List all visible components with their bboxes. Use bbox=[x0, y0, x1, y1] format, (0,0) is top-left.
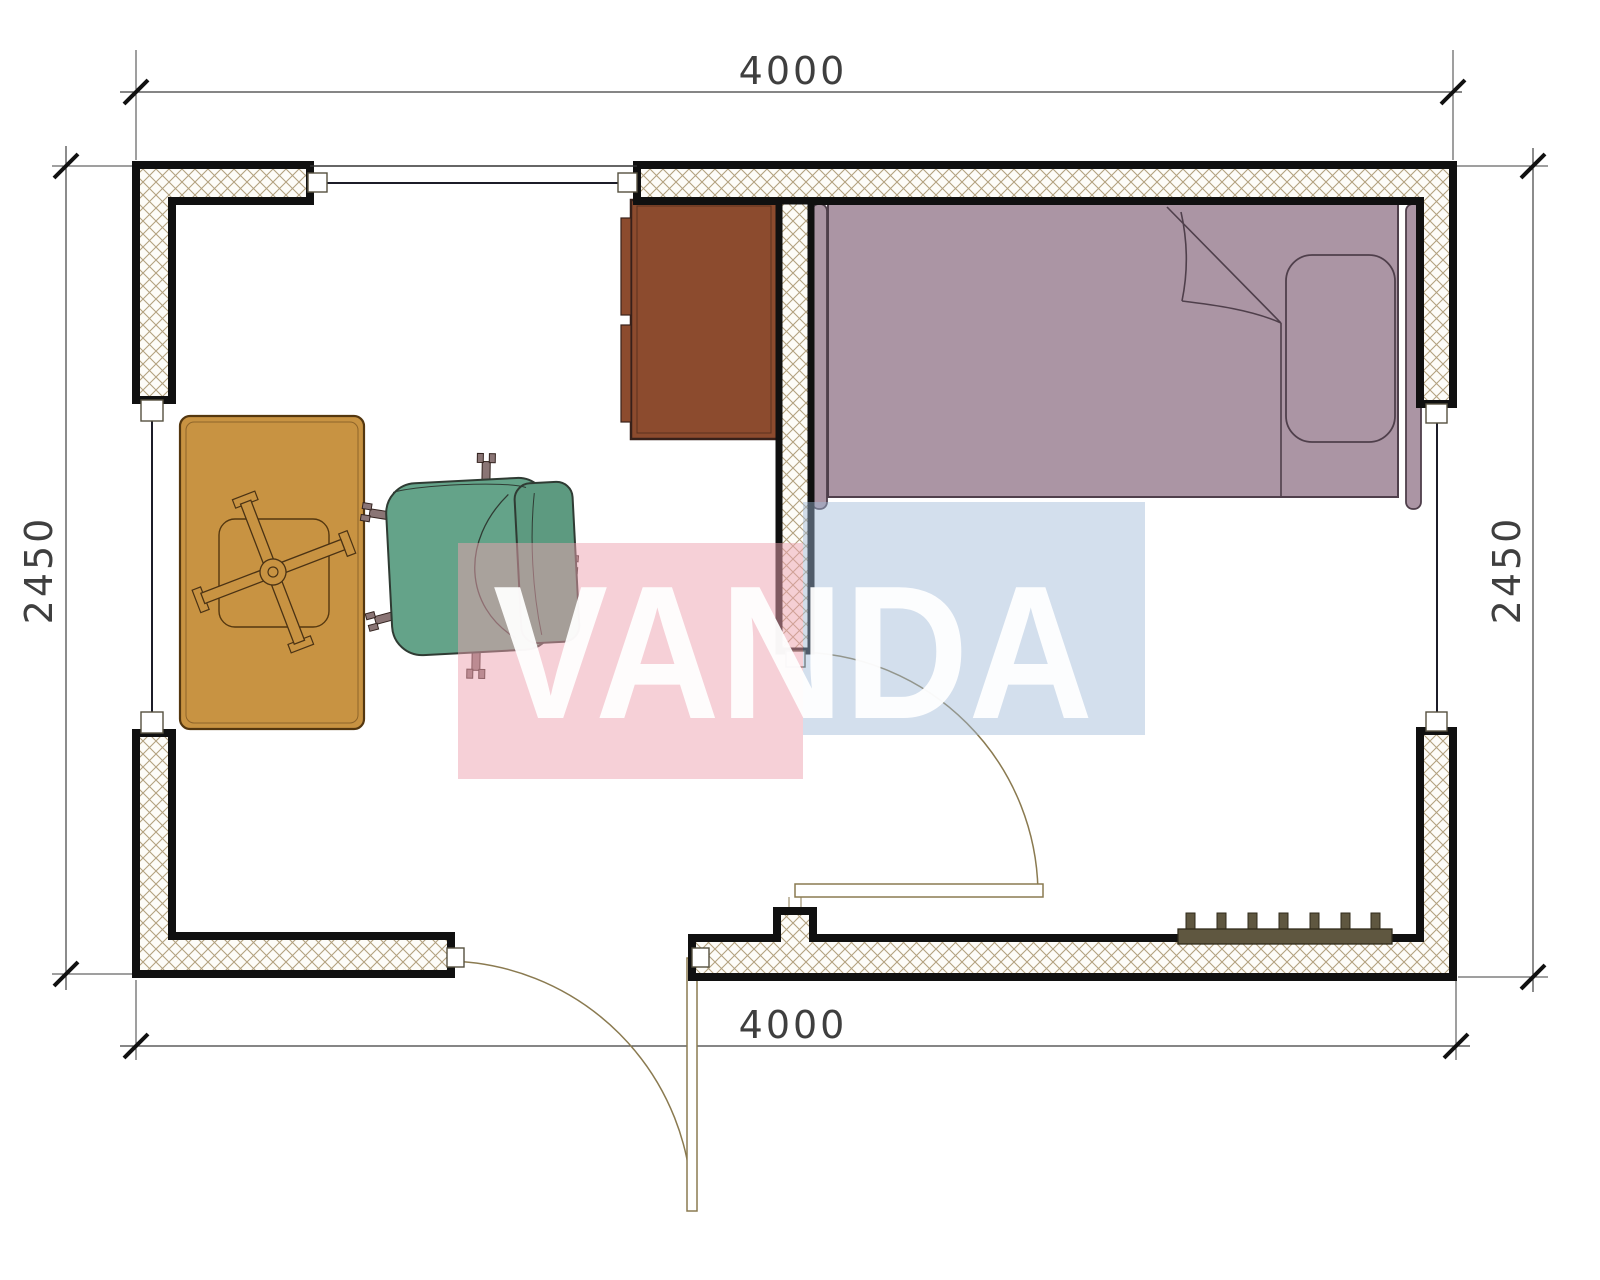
radiator-fin bbox=[1217, 913, 1226, 930]
radiator-fin bbox=[1341, 913, 1350, 930]
wardrobe-body bbox=[631, 200, 777, 439]
connector bbox=[1426, 712, 1447, 731]
connector bbox=[692, 948, 709, 967]
dimension-bottom: 4000 bbox=[120, 980, 1470, 1060]
wardrobe-door-handle bbox=[621, 325, 631, 422]
connector bbox=[1426, 404, 1447, 423]
connector bbox=[618, 173, 637, 192]
dimension-left: 2450 bbox=[17, 146, 132, 990]
interior-door-leaf bbox=[795, 884, 1043, 897]
connector bbox=[141, 712, 163, 733]
radiator-body bbox=[1178, 929, 1392, 944]
pedestal-table bbox=[167, 416, 381, 729]
floor-plan-svg: 4000 4000 2450 2450 bbox=[0, 0, 1600, 1280]
connector bbox=[447, 948, 464, 967]
extension-lines bbox=[52, 166, 132, 974]
single-bed bbox=[812, 203, 1421, 509]
entry-door-leaf bbox=[687, 958, 697, 1211]
watermark-text: VANDA bbox=[493, 547, 1093, 759]
radiator-fin bbox=[1371, 913, 1380, 930]
radiator-fin bbox=[1248, 913, 1257, 930]
wardrobe-door-handle bbox=[621, 218, 631, 315]
radiator-fin bbox=[1186, 913, 1195, 930]
wardrobe-cabinet bbox=[621, 200, 777, 439]
wall-top-left bbox=[136, 165, 310, 400]
dim-label-left: 2450 bbox=[17, 516, 61, 625]
dimension-right: 2450 bbox=[1456, 148, 1548, 992]
connector bbox=[308, 173, 327, 192]
wall-bottom-left bbox=[136, 733, 451, 974]
radiator-fin bbox=[1279, 913, 1288, 930]
radiator-fin bbox=[1310, 913, 1319, 930]
bed-pillow bbox=[1286, 255, 1395, 442]
dimension-top: 4000 bbox=[120, 49, 1465, 160]
dim-label-right: 2450 bbox=[1485, 516, 1529, 625]
dim-label-top: 4000 bbox=[739, 49, 848, 93]
radiator bbox=[1178, 913, 1392, 944]
connector bbox=[141, 400, 163, 421]
dim-label-bottom: 4000 bbox=[739, 1003, 848, 1047]
entry-door-swing-arc bbox=[444, 961, 692, 1209]
floor-plan-canvas: 4000 4000 2450 2450 bbox=[0, 0, 1600, 1280]
watermark: VANDA bbox=[458, 502, 1145, 779]
